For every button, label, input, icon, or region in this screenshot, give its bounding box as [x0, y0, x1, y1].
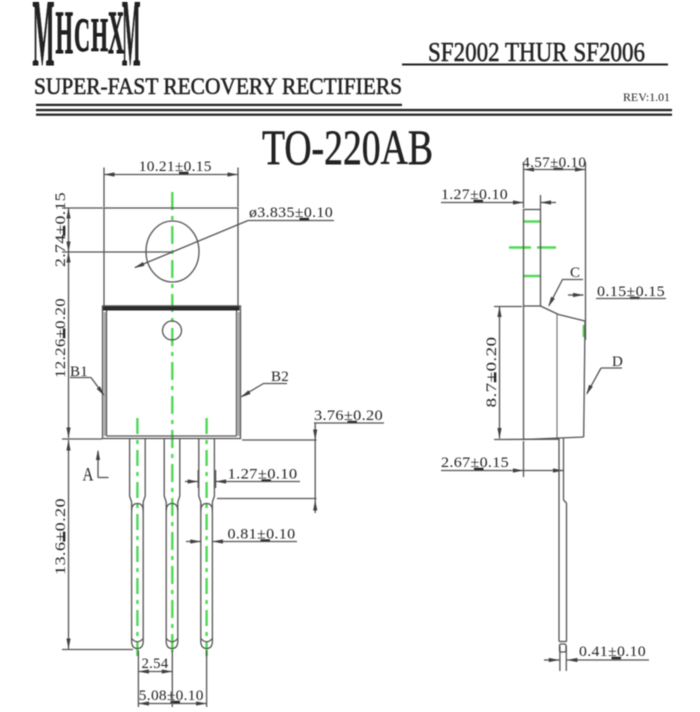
svg-text:SF2002 THUR SF2006: SF2002 THUR SF2006	[428, 37, 645, 67]
svg-text:8.7±0.20: 8.7±0.20	[484, 337, 500, 408]
svg-text:12.26±0.20: 12.26±0.20	[53, 298, 69, 378]
svg-text:REV:1.01: REV:1.01	[623, 92, 670, 104]
svg-text:2.54: 2.54	[142, 656, 169, 672]
svg-text:B2: B2	[271, 369, 289, 385]
svg-text:2.74±0.15: 2.74±0.15	[53, 192, 69, 267]
svg-text:13.6±0.20: 13.6±0.20	[53, 498, 69, 575]
svg-text:SUPER-FAST RECOVERY RECTIFIERS: SUPER-FAST RECOVERY RECTIFIERS	[34, 74, 402, 100]
svg-text:A: A	[83, 465, 94, 486]
svg-text:C: C	[570, 265, 580, 281]
svg-text:TO-220AB: TO-220AB	[262, 119, 433, 175]
svg-text:C: C	[74, 9, 90, 62]
svg-text:H: H	[91, 9, 108, 62]
svg-text:10.21±0.15: 10.21±0.15	[139, 159, 212, 175]
svg-text:H: H	[56, 0, 74, 67]
svg-text:ø3.835±0.10: ø3.835±0.10	[249, 205, 333, 221]
